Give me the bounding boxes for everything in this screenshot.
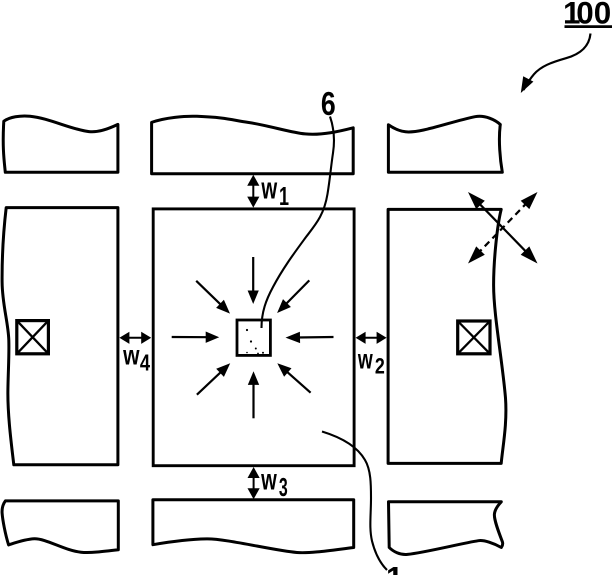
svg-text:w: w xyxy=(260,464,277,497)
svg-text:4: 4 xyxy=(140,351,151,376)
svg-text:w: w xyxy=(357,344,373,375)
svg-text:3: 3 xyxy=(279,473,288,502)
svg-text:2: 2 xyxy=(375,355,385,379)
svg-text:w: w xyxy=(122,341,140,371)
svg-text:w: w xyxy=(261,170,278,205)
svg-text:6: 6 xyxy=(321,86,336,122)
svg-text:1: 1 xyxy=(386,560,403,575)
svg-text:1: 1 xyxy=(279,182,289,211)
